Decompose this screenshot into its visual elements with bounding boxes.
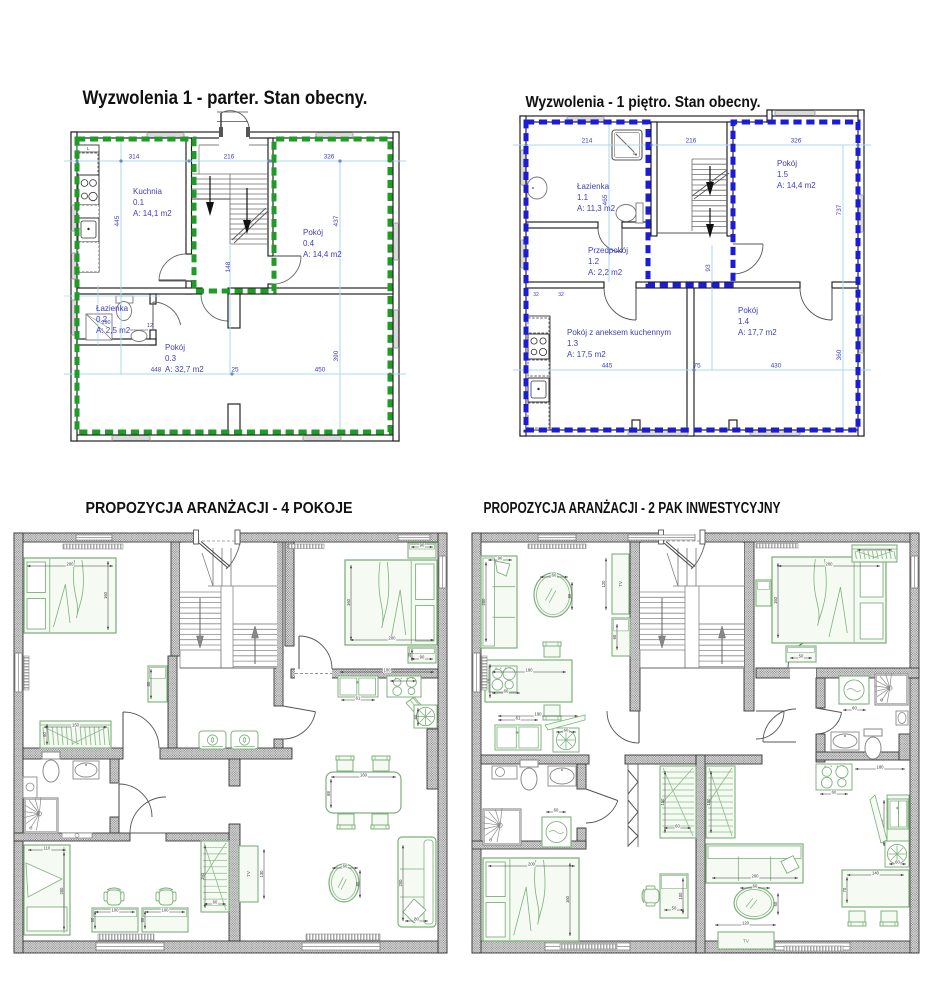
svg-text:150: 150 xyxy=(660,798,665,806)
svg-text:326: 326 xyxy=(791,138,802,145)
svg-text:150: 150 xyxy=(706,798,711,806)
svg-text:1.2: 1.2 xyxy=(588,257,600,266)
svg-text:30: 30 xyxy=(407,652,412,657)
svg-text:0.4: 0.4 xyxy=(303,239,315,248)
svg-text:50: 50 xyxy=(799,654,804,659)
svg-text:PROPOZYCJA ARANŻACJI - 2 PAK I: PROPOZYCJA ARANŻACJI - 2 PAK INWESTYCYJN… xyxy=(484,500,782,517)
svg-text:0.3: 0.3 xyxy=(165,354,177,363)
svg-text:50: 50 xyxy=(90,917,95,922)
svg-text:150: 150 xyxy=(72,723,80,728)
svg-text:200: 200 xyxy=(528,862,536,867)
svg-text:200: 200 xyxy=(481,598,486,606)
svg-text:326: 326 xyxy=(324,154,335,161)
svg-text:160: 160 xyxy=(346,598,351,606)
svg-text:737: 737 xyxy=(836,204,843,215)
svg-text:60: 60 xyxy=(413,714,418,719)
svg-text:32: 32 xyxy=(533,292,539,298)
svg-text:A: 11,3 m2: A: 11,3 m2 xyxy=(577,204,616,213)
svg-text:1.1: 1.1 xyxy=(577,193,589,202)
svg-text:50: 50 xyxy=(672,906,677,911)
svg-text:60: 60 xyxy=(564,728,569,733)
svg-text:60: 60 xyxy=(773,901,778,906)
svg-text:180: 180 xyxy=(877,765,885,770)
svg-text:70: 70 xyxy=(842,887,847,892)
svg-text:80: 80 xyxy=(355,881,360,886)
svg-text:Pokój: Pokój xyxy=(738,306,758,315)
svg-text:180: 180 xyxy=(526,668,534,673)
svg-text:60: 60 xyxy=(852,706,857,711)
svg-text:430: 430 xyxy=(771,363,782,370)
svg-text:90: 90 xyxy=(420,655,425,660)
svg-text:Łazienka: Łazienka xyxy=(96,304,129,313)
svg-text:A: 14,1 m2: A: 14,1 m2 xyxy=(133,209,172,218)
svg-text:Pokój: Pokój xyxy=(165,343,185,352)
svg-text:214: 214 xyxy=(582,138,593,145)
svg-text:Przedpokój: Przedpokój xyxy=(588,246,628,255)
svg-text:93: 93 xyxy=(705,264,712,272)
svg-text:A: 14,4 m2: A: 14,4 m2 xyxy=(303,250,342,259)
svg-text:12: 12 xyxy=(147,323,153,329)
svg-text:80: 80 xyxy=(567,593,572,598)
svg-text:60: 60 xyxy=(343,864,348,869)
svg-text:90: 90 xyxy=(420,543,425,548)
svg-text:148: 148 xyxy=(225,261,232,272)
svg-text:450: 450 xyxy=(315,367,326,374)
svg-text:360: 360 xyxy=(836,349,843,360)
svg-text:A: 2,2 m2: A: 2,2 m2 xyxy=(588,268,623,277)
svg-text:100: 100 xyxy=(678,892,683,900)
svg-text:90: 90 xyxy=(498,556,503,561)
svg-text:Kuchnia: Kuchnia xyxy=(133,187,162,196)
svg-text:Pokój z aneksem kuchennym: Pokój z aneksem kuchennym xyxy=(567,328,671,337)
svg-text:A: 32,7 m2: A: 32,7 m2 xyxy=(165,365,204,374)
svg-text:25: 25 xyxy=(231,367,239,374)
svg-text:60: 60 xyxy=(552,573,557,578)
svg-text:100: 100 xyxy=(384,668,392,673)
svg-text:120: 120 xyxy=(742,921,750,926)
svg-text:60: 60 xyxy=(612,634,617,639)
svg-text:80: 80 xyxy=(414,917,419,922)
svg-text:75: 75 xyxy=(693,363,701,370)
svg-text:200: 200 xyxy=(67,562,75,567)
svg-text:60: 60 xyxy=(753,884,758,889)
svg-text:1.4: 1.4 xyxy=(738,317,750,326)
svg-text:160: 160 xyxy=(360,773,368,778)
svg-text:160: 160 xyxy=(565,895,570,903)
svg-text:Łazienka: Łazienka xyxy=(577,182,610,191)
svg-text:190: 190 xyxy=(535,712,543,717)
svg-text:60: 60 xyxy=(675,824,680,829)
svg-text:130: 130 xyxy=(259,870,264,878)
svg-text:61: 61 xyxy=(356,696,361,701)
svg-text:Pokój: Pokój xyxy=(777,159,797,168)
svg-text:A: 14,4 m2: A: 14,4 m2 xyxy=(777,181,816,190)
svg-text:80: 80 xyxy=(146,681,151,686)
svg-text:1.3: 1.3 xyxy=(567,339,579,348)
svg-text:120: 120 xyxy=(601,580,606,588)
svg-text:200: 200 xyxy=(752,874,760,879)
svg-text:Wyzwolenia 1 - parter. Stan ob: Wyzwolenia 1 - parter. Stan obecny. xyxy=(83,88,368,109)
svg-text:445: 445 xyxy=(602,363,613,370)
svg-text:60: 60 xyxy=(832,790,837,795)
svg-text:140: 140 xyxy=(872,871,880,876)
svg-text:A: 17,7 m2: A: 17,7 m2 xyxy=(738,328,777,337)
svg-text:200: 200 xyxy=(398,879,403,887)
svg-text:200: 200 xyxy=(826,562,834,567)
svg-text:390: 390 xyxy=(333,350,340,361)
svg-text:32: 32 xyxy=(558,292,564,298)
svg-text:216: 216 xyxy=(686,138,697,145)
svg-text:110: 110 xyxy=(44,846,51,851)
svg-text:314: 314 xyxy=(129,154,140,161)
svg-text:160: 160 xyxy=(773,596,778,604)
svg-text:A: 2,5 m2: A: 2,5 m2 xyxy=(96,326,131,335)
svg-text:150: 150 xyxy=(200,872,205,880)
svg-text:60: 60 xyxy=(554,808,559,813)
svg-text:200: 200 xyxy=(389,636,397,641)
svg-text:60: 60 xyxy=(42,732,47,737)
svg-text:TV: TV xyxy=(743,938,749,943)
svg-text:TV: TV xyxy=(618,581,623,587)
svg-text:Wyzwolenia - 1 piętro. Stan ob: Wyzwolenia - 1 piętro. Stan obecny. xyxy=(526,94,761,111)
svg-text:Pokój: Pokój xyxy=(303,228,323,237)
svg-text:0.2: 0.2 xyxy=(96,315,108,324)
svg-text:TV: TV xyxy=(246,871,251,877)
svg-text:0.1: 0.1 xyxy=(133,198,145,207)
svg-text:PROPOZYCJA ARANŻACJI - 4 POKOJ: PROPOZYCJA ARANŻACJI - 4 POKOJE xyxy=(86,500,353,517)
svg-text:88: 88 xyxy=(326,791,331,796)
svg-text:60: 60 xyxy=(895,860,900,865)
svg-text:100: 100 xyxy=(112,908,120,913)
svg-text:437: 437 xyxy=(333,215,340,226)
svg-text:100: 100 xyxy=(162,908,170,913)
svg-text:200: 200 xyxy=(59,887,64,895)
svg-text:A: 17,5 m2: A: 17,5 m2 xyxy=(567,350,606,359)
svg-text:60: 60 xyxy=(213,900,218,905)
svg-text:1.5: 1.5 xyxy=(777,170,789,179)
svg-text:160: 160 xyxy=(103,591,108,599)
svg-text:448: 448 xyxy=(151,367,162,374)
svg-text:50: 50 xyxy=(140,917,145,922)
svg-text:445: 445 xyxy=(114,215,121,226)
svg-text:216: 216 xyxy=(224,154,235,161)
svg-text:60: 60 xyxy=(504,689,509,694)
